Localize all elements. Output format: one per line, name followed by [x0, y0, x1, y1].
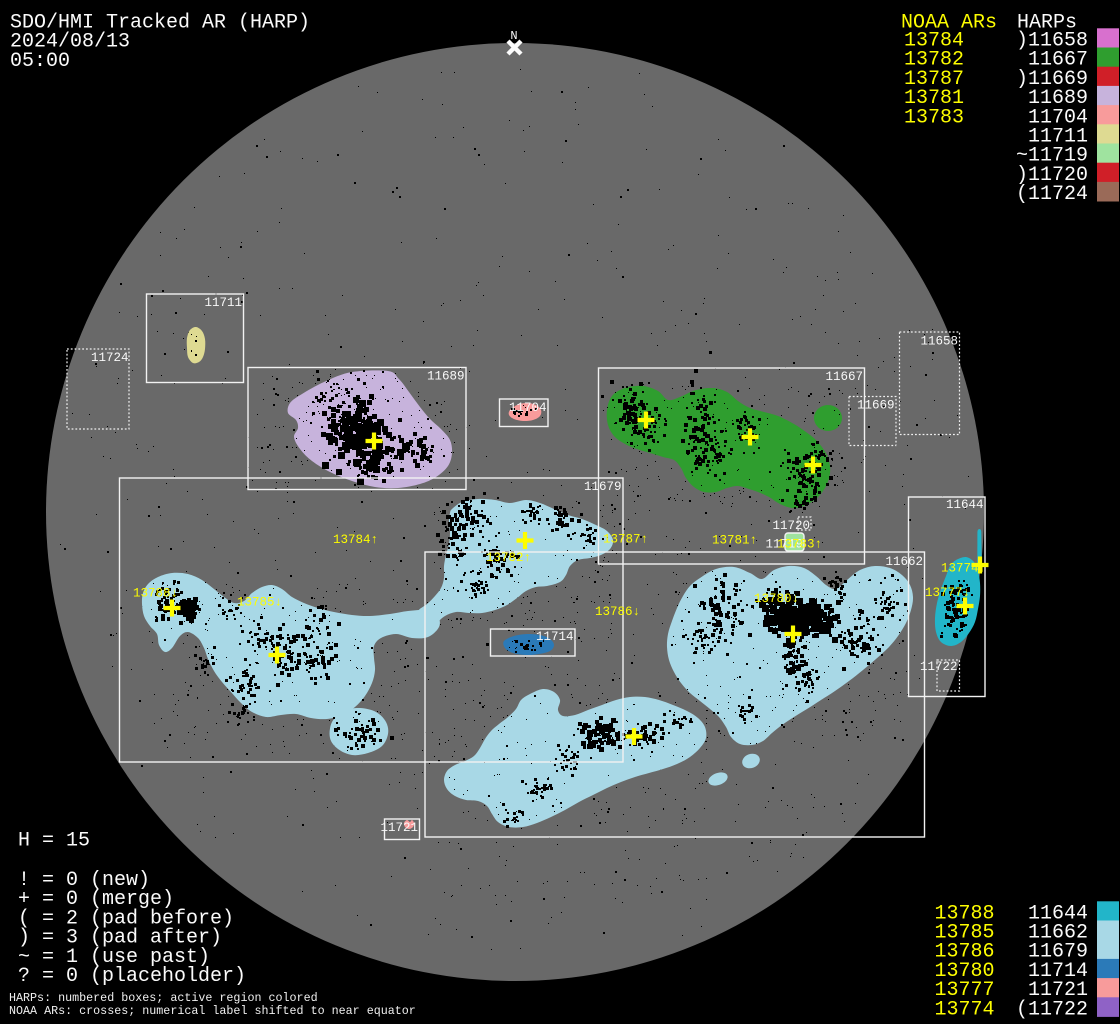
svg-text:13781↑: 13781↑: [712, 534, 757, 548]
svg-text:11669: 11669: [857, 399, 895, 413]
svg-text:11711: 11711: [204, 296, 242, 310]
svg-text:N: N: [510, 29, 517, 43]
svg-text:13784↑: 13784↑: [333, 533, 378, 547]
svg-text:13782↑: 13782↑: [486, 551, 531, 565]
svg-text:13786↓: 13786↓: [595, 605, 640, 619]
svg-text:05:00: 05:00: [10, 50, 70, 73]
svg-text:11721: 11721: [380, 821, 418, 835]
svg-text:11720: 11720: [772, 519, 810, 533]
svg-text:11722: 11722: [920, 660, 958, 674]
svg-text:11689: 11689: [427, 370, 465, 384]
svg-text:11679: 11679: [584, 480, 622, 494]
svg-text:HARPs: numbered boxes; active: HARPs: numbered boxes; active region col…: [9, 991, 318, 1005]
svg-text:11644: 11644: [946, 498, 984, 512]
svg-text:11714: 11714: [536, 630, 574, 644]
svg-text:(11722: (11722: [1016, 998, 1088, 1021]
svg-text:11662: 11662: [885, 555, 923, 569]
svg-text:13788↓: 13788↓: [133, 587, 178, 601]
svg-text:11724: 11724: [91, 351, 129, 365]
svg-text:(11724: (11724: [1016, 183, 1088, 206]
svg-text:11658: 11658: [920, 335, 958, 349]
svg-text:H = 15: H = 15: [18, 830, 90, 853]
svg-text:13780↓: 13780↓: [754, 592, 799, 606]
svg-text:13787↑: 13787↑: [603, 533, 648, 547]
svg-text:13785↓: 13785↓: [237, 596, 282, 610]
svg-text:11667: 11667: [825, 370, 863, 384]
svg-text:? = 0 (placeholder): ? = 0 (placeholder): [18, 965, 246, 988]
svg-text:NOAA ARs: crosses; numerical l: NOAA ARs: crosses; numerical label shift…: [9, 1004, 416, 1018]
svg-text:13774: 13774: [935, 998, 995, 1021]
svg-text:11704: 11704: [509, 401, 547, 415]
svg-text:13783↑: 13783↑: [777, 538, 822, 552]
svg-text:13783: 13783: [904, 106, 964, 129]
